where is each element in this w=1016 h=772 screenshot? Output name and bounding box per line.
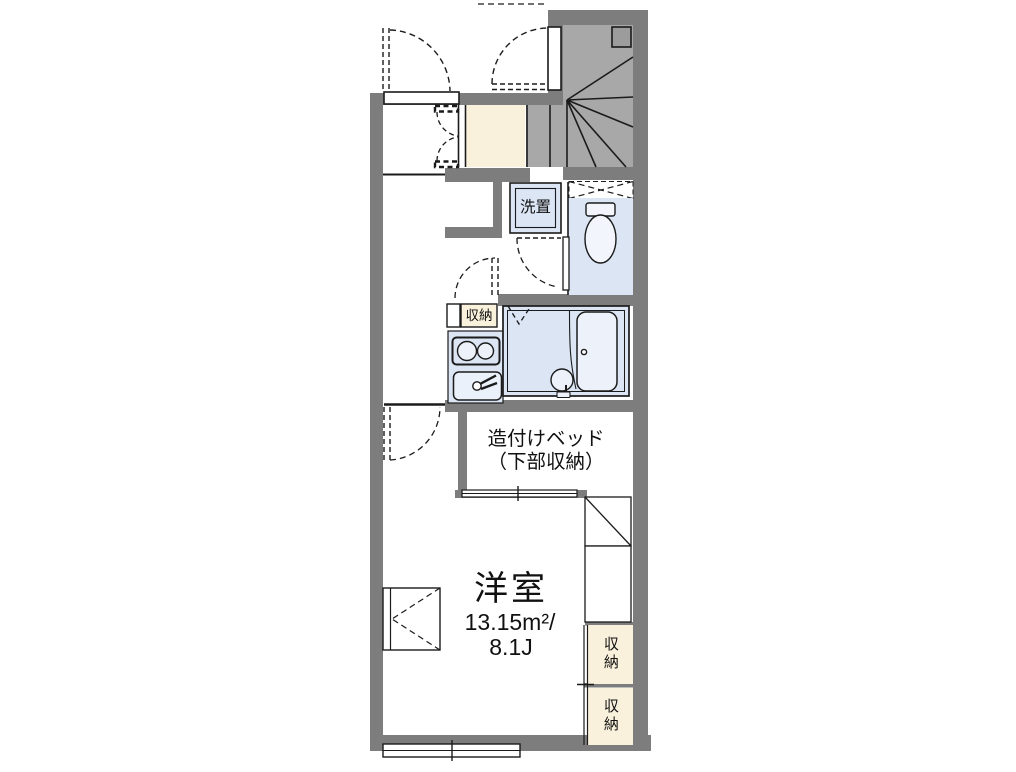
double-door-arc-bottom (437, 137, 458, 161)
wall-genkan-front (445, 168, 530, 182)
overhead-hatch (569, 182, 633, 199)
wall-niche-bottom (445, 227, 502, 238)
left-box-frame (383, 588, 440, 650)
main-room-door (384, 405, 445, 461)
stove-burner-left (458, 342, 477, 361)
wall-bath-top (498, 294, 648, 306)
genkan-floor (466, 105, 525, 167)
washroom-door-leaf (563, 237, 569, 290)
hall-storage-label: 収納 (466, 308, 493, 322)
bed-label-line2: （下部収納） (487, 452, 604, 472)
main-room-door-swing-arc (390, 407, 440, 460)
bathtub-knob (581, 349, 586, 354)
right-column (585, 497, 631, 622)
wash-basin (551, 369, 573, 391)
entrance-door-leaf (548, 27, 561, 90)
right-storage-bottom-label: 収納 (602, 698, 618, 734)
hall-small-box (447, 304, 460, 327)
kitchen-door-swing-arc (455, 258, 495, 298)
washroom-door-swing-arc (517, 238, 558, 287)
double-door-panel-top (435, 106, 458, 112)
wall-right (633, 10, 648, 751)
double-door-arc-top (437, 112, 458, 136)
bathroom (503, 306, 629, 398)
main-room-area-tatami: 8.1J (489, 635, 532, 659)
genkan-area (383, 105, 525, 175)
basin-foot (557, 392, 570, 398)
stair-landing (526, 105, 563, 167)
bed-opening (462, 486, 577, 501)
double-door-panel-bottom (435, 162, 458, 168)
main-room-area-sqm: 13.15m²/ (465, 610, 556, 634)
right-cell-blank (585, 546, 631, 622)
kitchen-door (455, 258, 498, 298)
entrance-door-swing-arc (492, 28, 548, 84)
bed-label-line1: 造付けベッド (487, 429, 604, 449)
door-sill (384, 92, 459, 104)
main-room-name: 洋室 (474, 572, 548, 608)
toilet-bowl (585, 215, 616, 263)
kitchen (448, 331, 503, 403)
top-left-door (383, 28, 459, 104)
washroom-door (517, 237, 569, 290)
double-door (435, 106, 458, 167)
toilet-tank (586, 203, 615, 216)
right-storage-top-label: 収納 (602, 636, 618, 672)
floorplan-canvas: 洗置 収納 造付けベッド （下部収納） 洋室 13.15m²/ 8.1J 収納 … (0, 0, 1016, 772)
washer-space-label: 洗置 (520, 200, 551, 216)
toilet-room (568, 182, 633, 295)
door-swing-arc (390, 30, 450, 91)
wall-bed-left (458, 412, 467, 490)
left-wall-box (383, 588, 440, 650)
wall-left (370, 93, 383, 751)
stair-corner-box (612, 27, 631, 47)
stove-burner-right (478, 343, 494, 359)
